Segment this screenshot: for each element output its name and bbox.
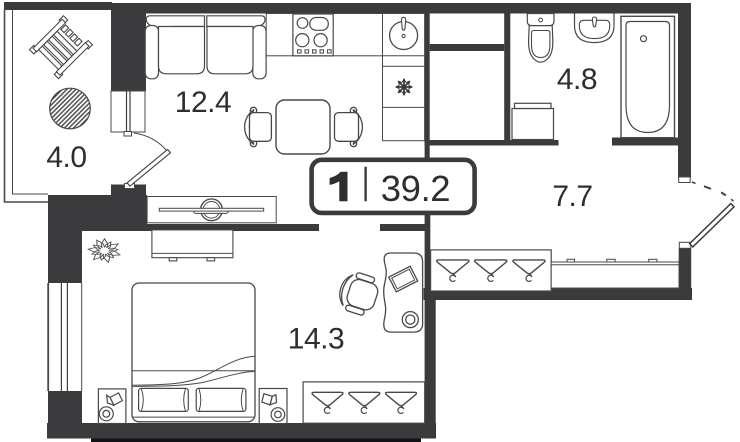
svg-text:14.3: 14.3 [288,323,345,356]
svg-text:12.4: 12.4 [175,86,232,119]
svg-text:39.2: 39.2 [381,168,450,209]
svg-text:4.0: 4.0 [46,141,86,174]
svg-text:4.8: 4.8 [557,63,597,96]
svg-text:7.7: 7.7 [552,180,592,213]
